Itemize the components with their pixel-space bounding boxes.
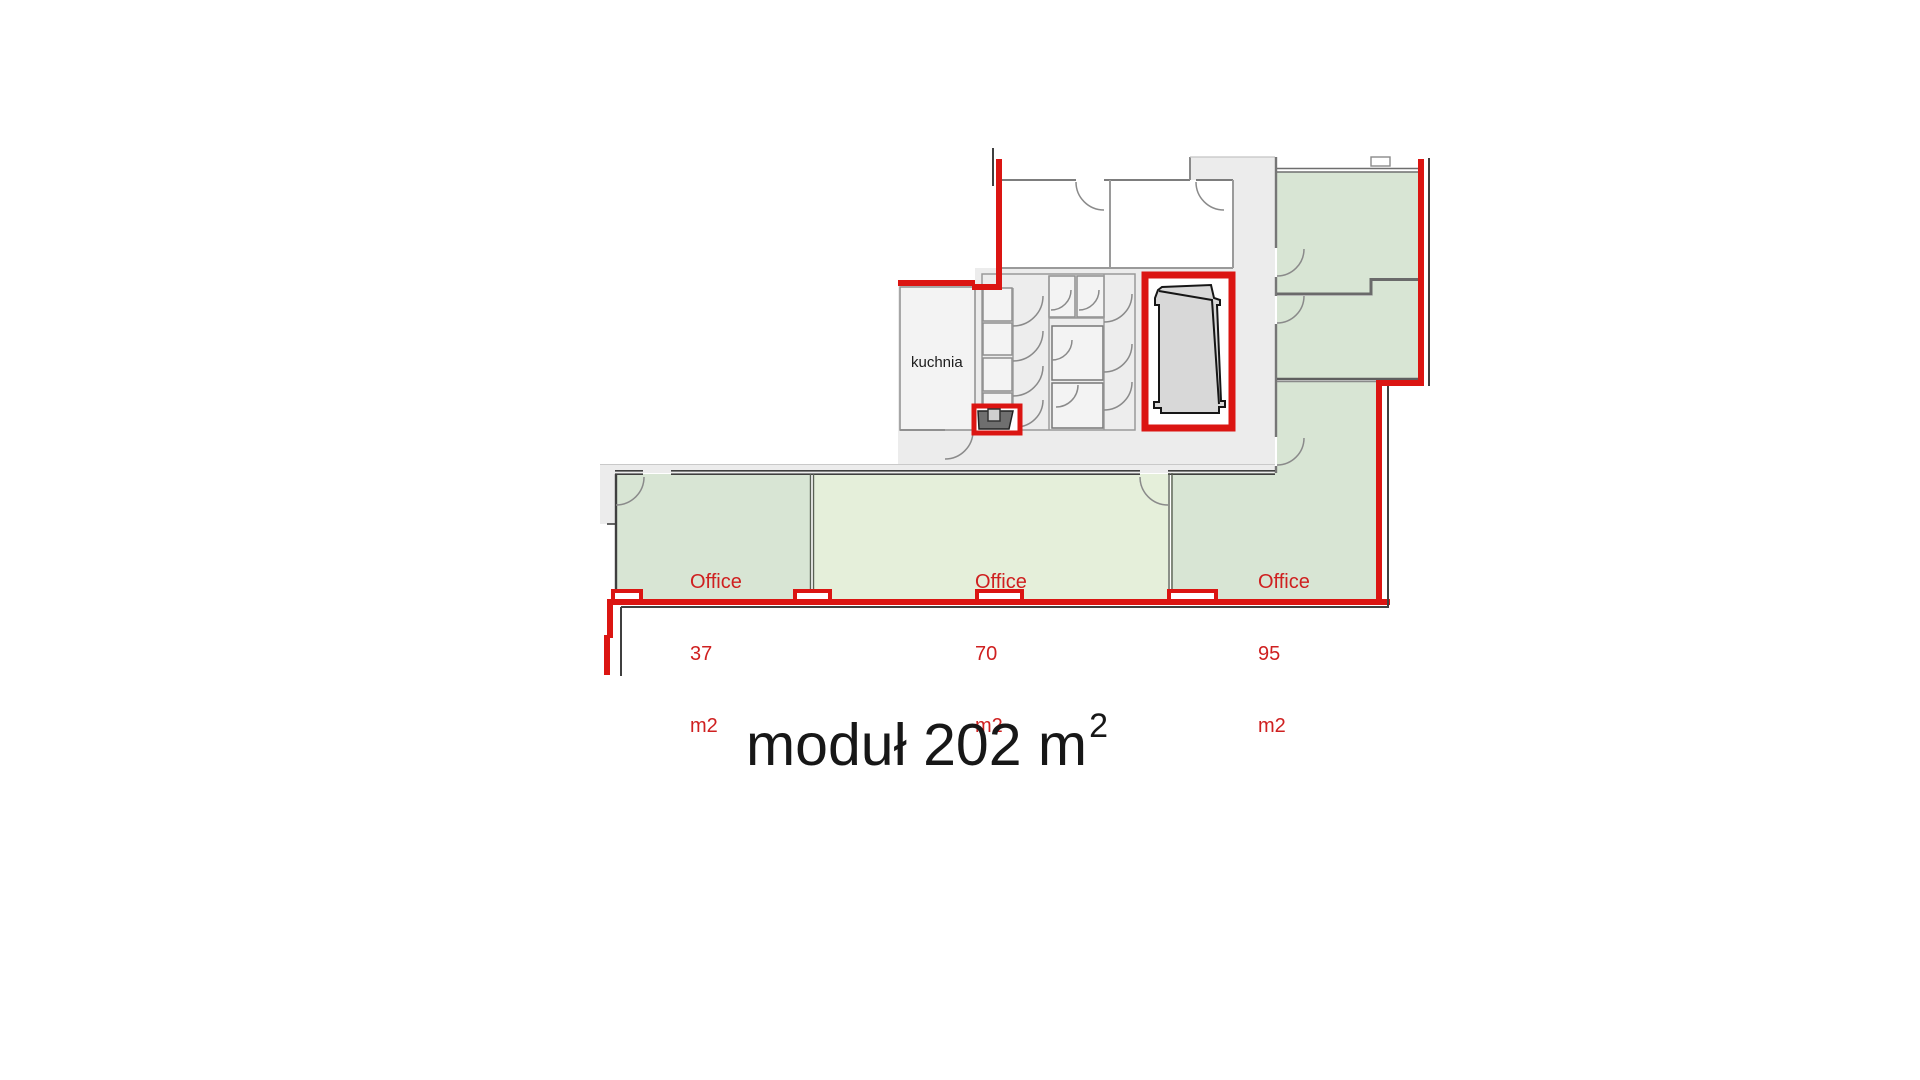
toilet-room xyxy=(1052,326,1103,380)
office-70-name: Office xyxy=(975,570,1027,594)
office-37-area: 37 xyxy=(690,642,742,666)
plan-title-text: moduł 202 m xyxy=(746,712,1087,778)
window-notch xyxy=(1169,591,1216,601)
office-95-area: 95 xyxy=(1258,642,1310,666)
window-notch xyxy=(795,591,830,601)
stall xyxy=(983,323,1012,355)
office-37-name: Office xyxy=(690,570,742,594)
plan-title: moduł 202 m2 xyxy=(746,708,1108,778)
floor-plan-page: Office 37 m2 Office 70 m2 Office 95 m2 k… xyxy=(0,0,1920,1080)
office-95-name: Office xyxy=(1258,570,1310,594)
boundary-kitchen-step xyxy=(972,284,1002,290)
office-95-label: Office 95 m2 xyxy=(1258,522,1310,786)
boundary-right-lower xyxy=(1376,386,1382,602)
stair-shaft xyxy=(1145,275,1232,428)
stall xyxy=(983,288,1012,321)
boundary-right-top xyxy=(1418,159,1424,385)
stall xyxy=(1077,276,1104,317)
plan-title-superscript: 2 xyxy=(1089,707,1108,745)
office-37-label: Office 37 m2 xyxy=(690,522,742,786)
floor-plan-drawing xyxy=(0,0,1920,1080)
kitchen-label: kuchnia xyxy=(911,354,963,371)
boundary-left-tail-b xyxy=(604,635,610,675)
green-room-2 xyxy=(1277,281,1419,379)
utility-box xyxy=(974,406,1020,433)
window-notch xyxy=(613,591,641,601)
office-70-area: 70 xyxy=(975,642,1027,666)
office-95-unit: m2 xyxy=(1258,714,1310,738)
boundary-kitchen-top xyxy=(898,280,975,286)
utility-fixture-inner xyxy=(988,409,1000,421)
boundary-left-core xyxy=(996,159,1002,290)
green-room-1 xyxy=(1277,172,1419,293)
strip-left-wrap xyxy=(600,464,617,524)
strip-above-offices xyxy=(600,464,1275,473)
boundary-right-step xyxy=(1376,380,1424,386)
boundary-left-tail-a xyxy=(607,599,613,638)
stall xyxy=(1049,276,1075,317)
stall xyxy=(983,358,1012,391)
office-37-unit: m2 xyxy=(690,714,742,738)
window-tick xyxy=(1371,157,1390,166)
